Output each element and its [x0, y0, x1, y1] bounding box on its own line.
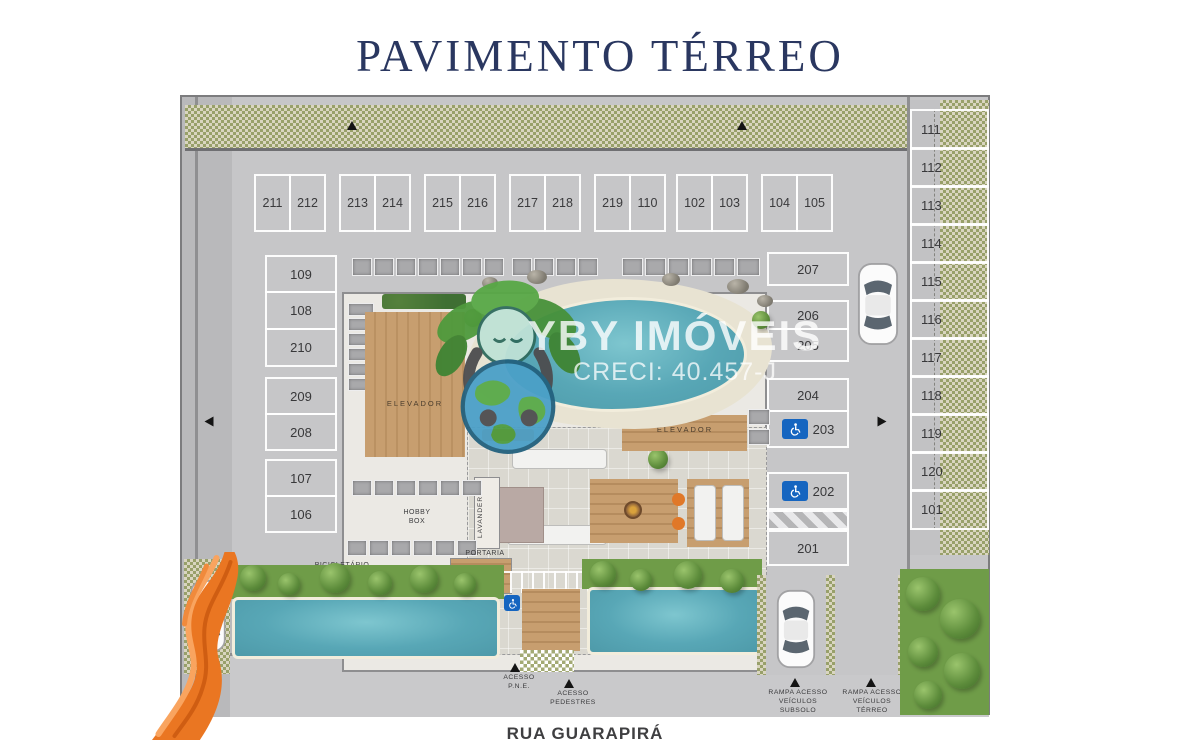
parking-stall-number: 202	[813, 484, 835, 499]
parking-stall: 218	[544, 174, 581, 232]
parking-stall: 209	[265, 377, 337, 415]
parking-stall: 110	[629, 174, 666, 232]
hobby-box	[714, 258, 735, 276]
parking-stall: 116	[910, 299, 989, 340]
palm-tree	[454, 573, 476, 595]
car-icon	[855, 262, 901, 346]
parking-stall: 101	[910, 489, 989, 530]
parking-stall: 214	[374, 174, 411, 232]
parking-stall: 211	[254, 174, 291, 232]
parking-stall: 207	[767, 252, 849, 286]
parking-stall-number: 203	[813, 422, 835, 437]
parking-stall: 118	[910, 375, 989, 416]
palm-tree	[320, 563, 350, 593]
pool-stairs	[522, 589, 580, 651]
parking-pair: 104 105	[761, 174, 833, 232]
parking-stall: 103	[711, 174, 748, 232]
access-arrow-icon	[510, 663, 520, 672]
ramp-edge	[757, 575, 766, 675]
parking-stall: 107	[265, 459, 337, 497]
parking-stall: 215	[424, 174, 461, 232]
ramp-edge	[826, 575, 835, 675]
palm-tree	[590, 561, 616, 587]
rock	[662, 273, 680, 286]
palm-tree	[630, 569, 652, 591]
parking-stall: 114	[910, 223, 989, 264]
no-parking-hatch	[767, 510, 849, 530]
parking-stall-accessible: 202	[767, 472, 849, 510]
orange-chair	[672, 493, 685, 506]
hobby-box	[748, 429, 770, 445]
top-landscape-band	[185, 105, 907, 151]
parking-pair: 102 103	[676, 174, 748, 232]
access-pedestrians-label: ACESSOPEDESTRES	[540, 690, 606, 708]
hobby-box	[396, 258, 416, 276]
parking-pair: 219 110	[594, 174, 666, 232]
ramp-basement-label: RAMPA ACESSOVEÍCULOSSUBSOLO	[758, 689, 838, 715]
hobby-box	[737, 258, 760, 276]
car-icon	[772, 589, 820, 669]
access-pne-label: ACESSOP.N.E.	[494, 674, 544, 692]
fire-pit	[624, 501, 642, 519]
west-marker-icon	[205, 417, 214, 427]
wheelchair-icon	[504, 595, 520, 611]
floor-plan-page: PAVIMENTO TÉRREO 211 212 213 214 215 216	[0, 0, 1200, 740]
hobby-box	[440, 480, 460, 496]
tree	[908, 637, 938, 667]
tree	[940, 599, 980, 639]
tree	[906, 577, 940, 611]
parking-stall: 213	[339, 174, 376, 232]
hobby-box	[748, 409, 770, 425]
hobby-box	[369, 540, 389, 556]
watermark-creci: CRECI: 40.457-J	[545, 358, 805, 387]
rock	[727, 279, 749, 294]
hobby-box-mid-label: HOBBYBOX	[387, 508, 447, 526]
parking-stall: 113	[910, 185, 989, 226]
rock	[757, 295, 773, 307]
hobby-box	[352, 480, 372, 496]
palm-tree	[240, 565, 266, 591]
tree	[914, 681, 942, 709]
parking-stall: 105	[796, 174, 833, 232]
parking-stall: 104	[761, 174, 798, 232]
parking-pair: 211 212	[254, 174, 326, 232]
wheelchair-icon	[782, 481, 808, 501]
parking-stall: 117	[910, 337, 989, 378]
wheelchair-icon	[782, 419, 808, 439]
parking-stall: 201	[767, 530, 849, 566]
hobby-box	[691, 258, 712, 276]
leisure-pool	[587, 587, 762, 655]
orange-drape-decoration	[146, 552, 242, 740]
hobby-box	[413, 540, 433, 556]
palm-tree	[278, 573, 300, 595]
parking-stall: 112	[910, 147, 989, 188]
parking-stall: 115	[910, 261, 989, 302]
parking-stall: 111	[910, 109, 989, 150]
hobby-box	[347, 540, 367, 556]
parking-stall: 119	[910, 413, 989, 454]
east-marker-icon	[878, 417, 887, 427]
pergola-lounger	[694, 485, 716, 541]
hobby-box	[391, 540, 411, 556]
hobby-box	[622, 258, 643, 276]
parking-stall: 106	[265, 495, 337, 533]
palm-tree	[674, 561, 702, 589]
hobby-box	[418, 480, 438, 496]
parking-stall-accessible: 203	[767, 410, 849, 448]
parking-stall: 109	[265, 255, 337, 293]
parking-stall: 120	[910, 451, 989, 492]
parking-pair: 213 214	[339, 174, 411, 232]
palm-tree	[410, 565, 438, 593]
ramp-arrow-icon	[866, 678, 876, 687]
page-title: PAVIMENTO TÉRREO	[0, 30, 1200, 82]
parking-pair: 217 218	[509, 174, 581, 232]
hobby-box	[352, 258, 372, 276]
hobby-box	[645, 258, 666, 276]
hobby-box	[374, 258, 394, 276]
tree	[944, 653, 980, 689]
palm-tree	[720, 569, 744, 593]
parking-stall: 108	[265, 291, 337, 330]
reception-label: PORTARIA	[450, 549, 520, 558]
pedestrian-crossing	[520, 650, 574, 672]
parking-stall: 216	[459, 174, 496, 232]
watermark-brand: YBY IMÓVEIS	[510, 312, 840, 360]
pergola-lounger	[722, 485, 744, 541]
parking-stall: 212	[289, 174, 326, 232]
access-arrow-icon	[564, 679, 574, 688]
tree	[648, 449, 668, 469]
ramp-arrow-icon	[790, 678, 800, 687]
hobby-box	[396, 480, 416, 496]
parking-stall: 217	[509, 174, 546, 232]
north-marker-icon	[737, 121, 747, 130]
palm-tree	[368, 571, 392, 595]
parking-pair: 215 216	[424, 174, 496, 232]
lap-pool	[232, 597, 500, 659]
hobby-box	[462, 480, 482, 496]
parking-stall: 102	[676, 174, 713, 232]
parking-stall: 208	[265, 413, 337, 451]
street-label: RUA GUARAPIRÁ	[180, 724, 990, 740]
north-marker-icon	[347, 121, 357, 130]
parking-stall: 210	[265, 328, 337, 367]
hobby-box	[374, 480, 394, 496]
orange-chair	[672, 517, 685, 530]
ramp-ground-lane	[835, 575, 907, 675]
parking-stall: 219	[594, 174, 631, 232]
